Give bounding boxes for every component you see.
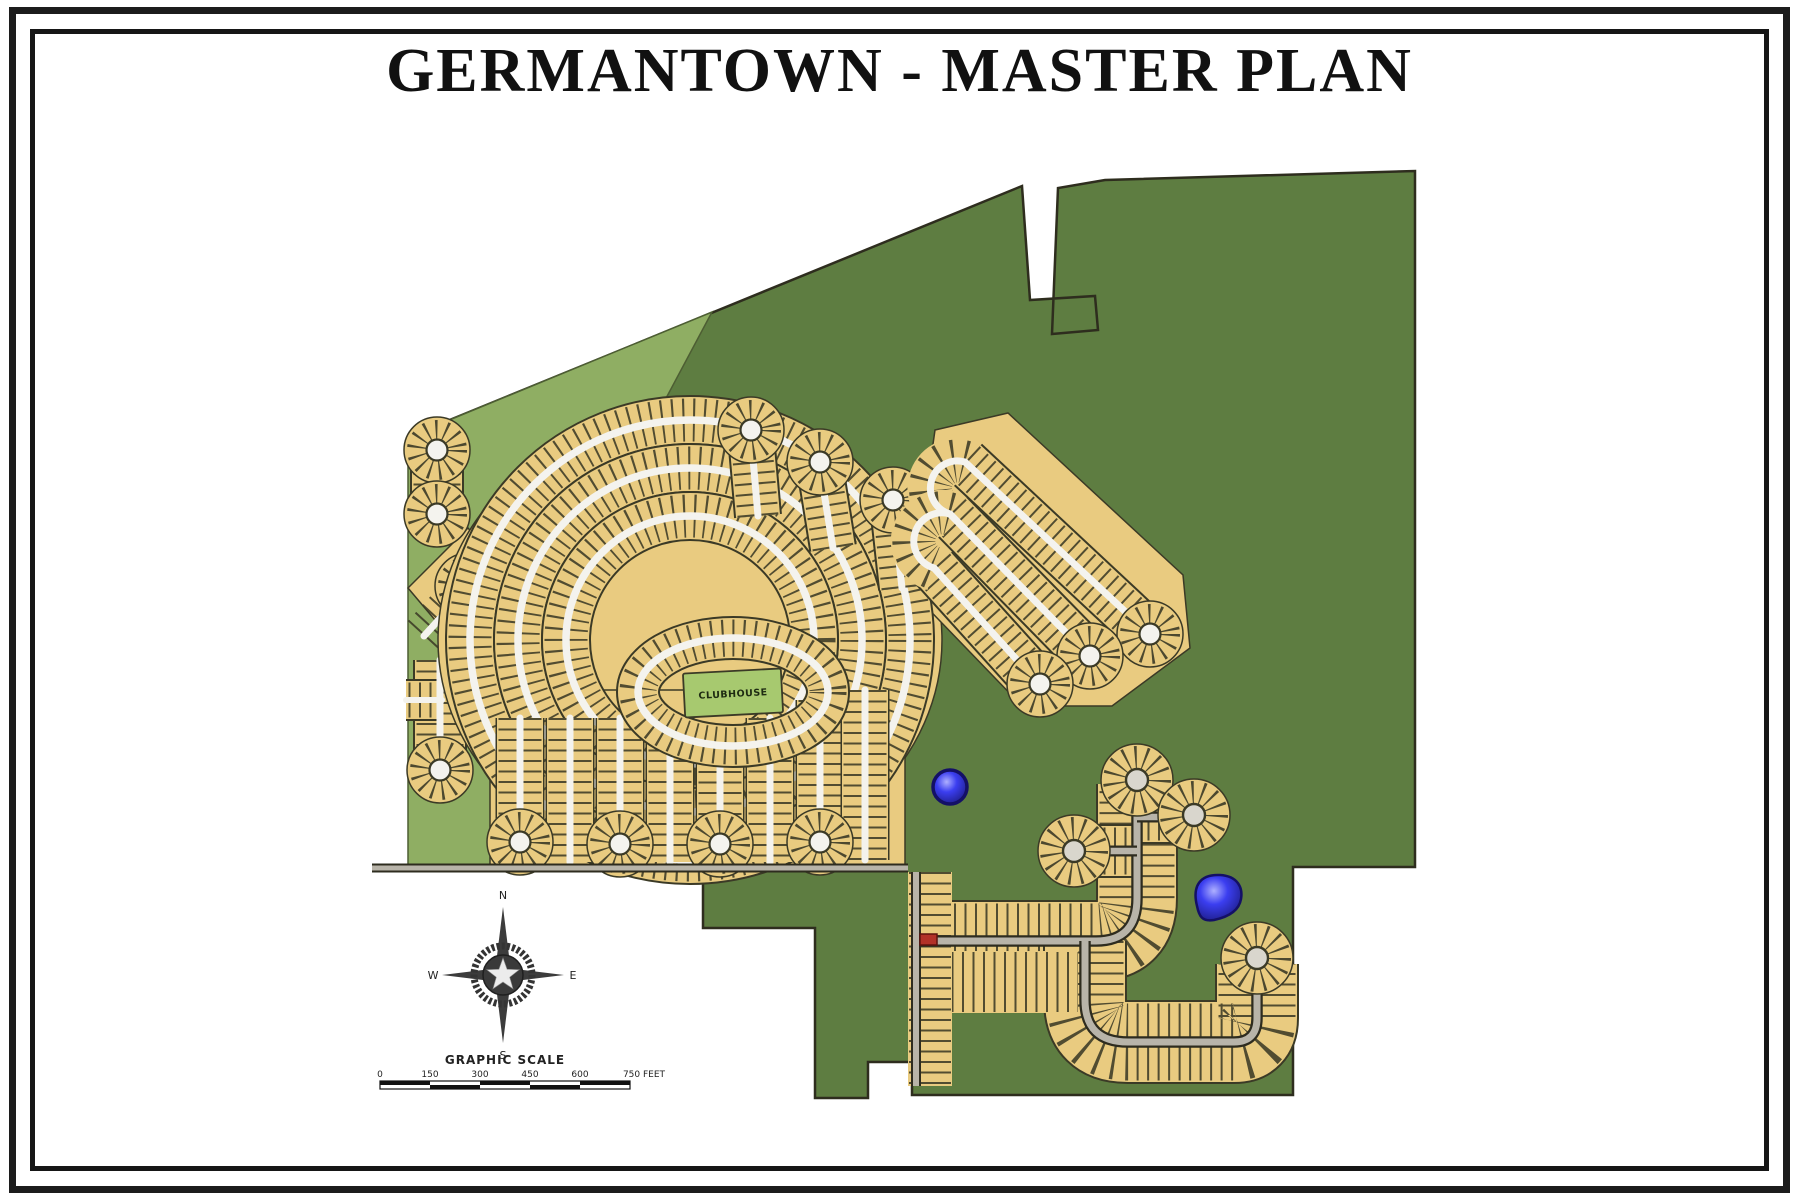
scale-tick-5: 750 FEET <box>623 1070 666 1080</box>
scale-tick-3: 450 <box>521 1070 538 1080</box>
cul-de-sac <box>404 481 470 547</box>
cul-de-sac <box>1038 815 1110 887</box>
cul-de-sac <box>1158 779 1230 851</box>
plan-sheet: GERMANTOWN - MASTER PLAN <box>0 0 1799 1200</box>
scale-tick-1: 150 <box>421 1070 438 1080</box>
compass-w-label: W <box>428 969 439 982</box>
entry-marker <box>920 934 937 945</box>
cul-de-sac <box>407 737 473 803</box>
compass-e-label: E <box>570 969 577 982</box>
compass-n-label: N <box>499 889 507 902</box>
master-plan-map: CLUBHOUSE <box>0 0 1799 1200</box>
cul-de-sac <box>1117 601 1183 667</box>
scale-tick-2: 300 <box>471 1070 488 1080</box>
cul-de-sac <box>787 429 853 495</box>
scale-heading: GRAPHIC SCALE <box>445 1053 565 1067</box>
pond-small <box>933 770 967 804</box>
scale-bar <box>380 1081 630 1089</box>
scale-tick-0: 0 <box>377 1070 383 1080</box>
cul-de-sac <box>1221 922 1293 994</box>
compass-rose: N S E W <box>428 889 577 1062</box>
graphic-scale: GRAPHIC SCALE 0 150 300 450 600 750 FEET <box>377 1053 665 1089</box>
cul-de-sac <box>1007 651 1073 717</box>
scale-tick-4: 600 <box>571 1070 588 1080</box>
clubhouse: CLUBHOUSE <box>683 668 783 717</box>
cul-de-sac <box>718 397 784 463</box>
cul-de-sac <box>404 417 470 483</box>
